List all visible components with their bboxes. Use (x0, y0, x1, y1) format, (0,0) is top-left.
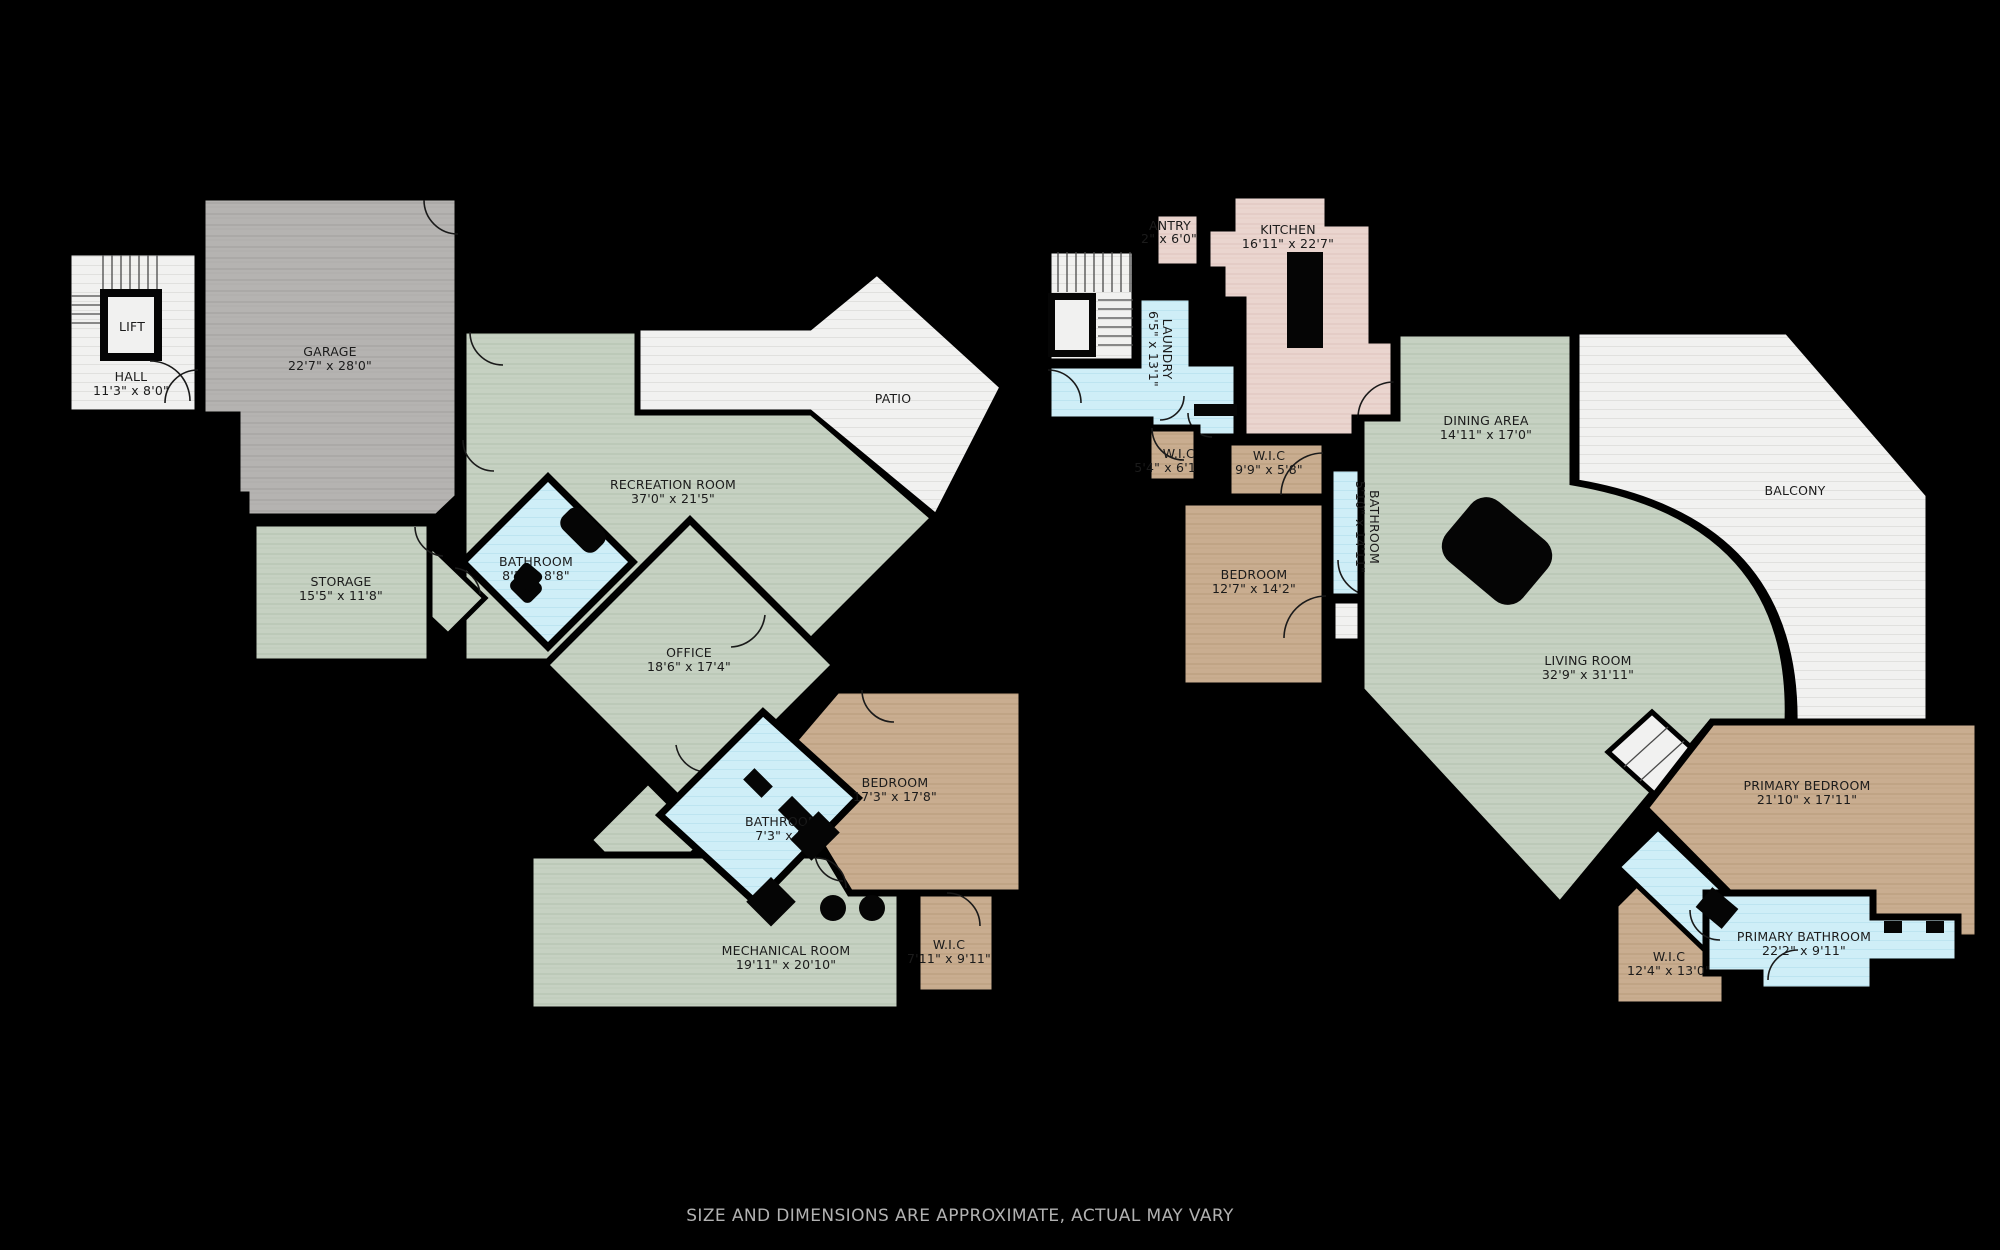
dims-laundry: 6'5" x 13'1" (1146, 311, 1161, 387)
dims-bathroom-upper: 5'10" x 14'11" (1353, 481, 1368, 573)
label-storage: STORAGE (311, 574, 372, 589)
label-wic-2: W.I.C (1253, 448, 1285, 463)
dims-garage: 22'7" x 28'0" (288, 358, 372, 373)
floor-plan-page: LIFT HALL 11'3" x 8'0" GARAGE 22'7" x 28… (0, 0, 2000, 1250)
dims-bedroom-upper: 12'7" x 14'2" (1212, 581, 1296, 596)
label-lift: LIFT (119, 319, 145, 334)
tank-fixture-2 (859, 895, 885, 921)
label-mechanical: MECHANICAL ROOM (722, 943, 851, 958)
label-laundry: LAUNDRY (1160, 319, 1175, 380)
label-wic-lower: W.I.C (933, 937, 965, 952)
sink-fixture-3 (1926, 921, 1944, 933)
dims-kitchen: 16'11" x 22'7" (1242, 236, 1334, 251)
label-balcony: BALCONY (1764, 483, 1825, 498)
label-bathroom-upper: BATHROOM (1367, 490, 1382, 564)
label-office: OFFICE (666, 645, 712, 660)
label-primary-bedroom: PRIMARY BEDROOM (1744, 778, 1871, 793)
dims-wic-3: 12'4" x 13'0" (1627, 963, 1711, 978)
label-garage: GARAGE (303, 344, 357, 359)
dims-wic-lower: 7'11" x 9'11" (907, 951, 991, 966)
dims-mechanical: 19'11" x 20'10" (736, 957, 836, 972)
dims-office: 18'6" x 17'4" (647, 659, 731, 674)
disclaimer-text: SIZE AND DIMENSIONS ARE APPROXIMATE, ACT… (686, 1206, 1234, 1226)
dims-living: 32'9" x 31'11" (1542, 667, 1634, 682)
laundry-counter (1194, 404, 1237, 416)
sink-fixture-2 (1884, 921, 1902, 933)
label-dining: DINING AREA (1443, 413, 1528, 428)
dims-bedroom-1: 17'3" x 17'8" (853, 789, 937, 804)
tank-fixture (820, 895, 846, 921)
dims-primary-bedroom: 21'10" x 17'11" (1757, 792, 1857, 807)
dims-dining: 14'11" x 17'0" (1440, 427, 1532, 442)
label-kitchen: KITCHEN (1260, 222, 1316, 237)
dims-pantry: 2" x 6'0" (1141, 231, 1197, 246)
label-hall: HALL (115, 369, 148, 384)
kitchen-island (1287, 252, 1323, 348)
label-laundry-group: LAUNDRY 6'5" x 13'1" (1146, 311, 1175, 387)
label-bedroom-upper: BEDROOM (1221, 567, 1288, 582)
dims-storage: 15'5" x 11'8" (299, 588, 383, 603)
dims-recreation: 37'0" x 21'5" (631, 491, 715, 506)
dims-wic-small: 5'4" x 6'1 (1134, 460, 1196, 475)
dims-primary-bathroom: 22'2" x 9'11" (1762, 943, 1846, 958)
label-primary-bathroom: PRIMARY BATHROOM (1737, 929, 1871, 944)
stair-void-inner (1055, 300, 1089, 350)
label-bedroom-1: BEDROOM (862, 775, 929, 790)
label-bathroom-1: BATHROOM (499, 554, 573, 569)
label-bathroom-upper-group: BATHROOM 5'10" x 14'11" (1353, 481, 1382, 573)
dims-hall: 11'3" x 8'0" (93, 383, 169, 398)
label-wic-3: W.I.C (1653, 949, 1685, 964)
floor-plan-canvas: LIFT HALL 11'3" x 8'0" GARAGE 22'7" x 28… (0, 0, 2000, 1250)
label-living: LIVING ROOM (1544, 653, 1631, 668)
label-recreation: RECREATION ROOM (610, 477, 736, 492)
label-wic-small: W.I.C (1163, 446, 1195, 461)
dims-wic-2: 9'9" x 5'8" (1235, 462, 1303, 477)
label-patio: PATIO (875, 391, 911, 406)
